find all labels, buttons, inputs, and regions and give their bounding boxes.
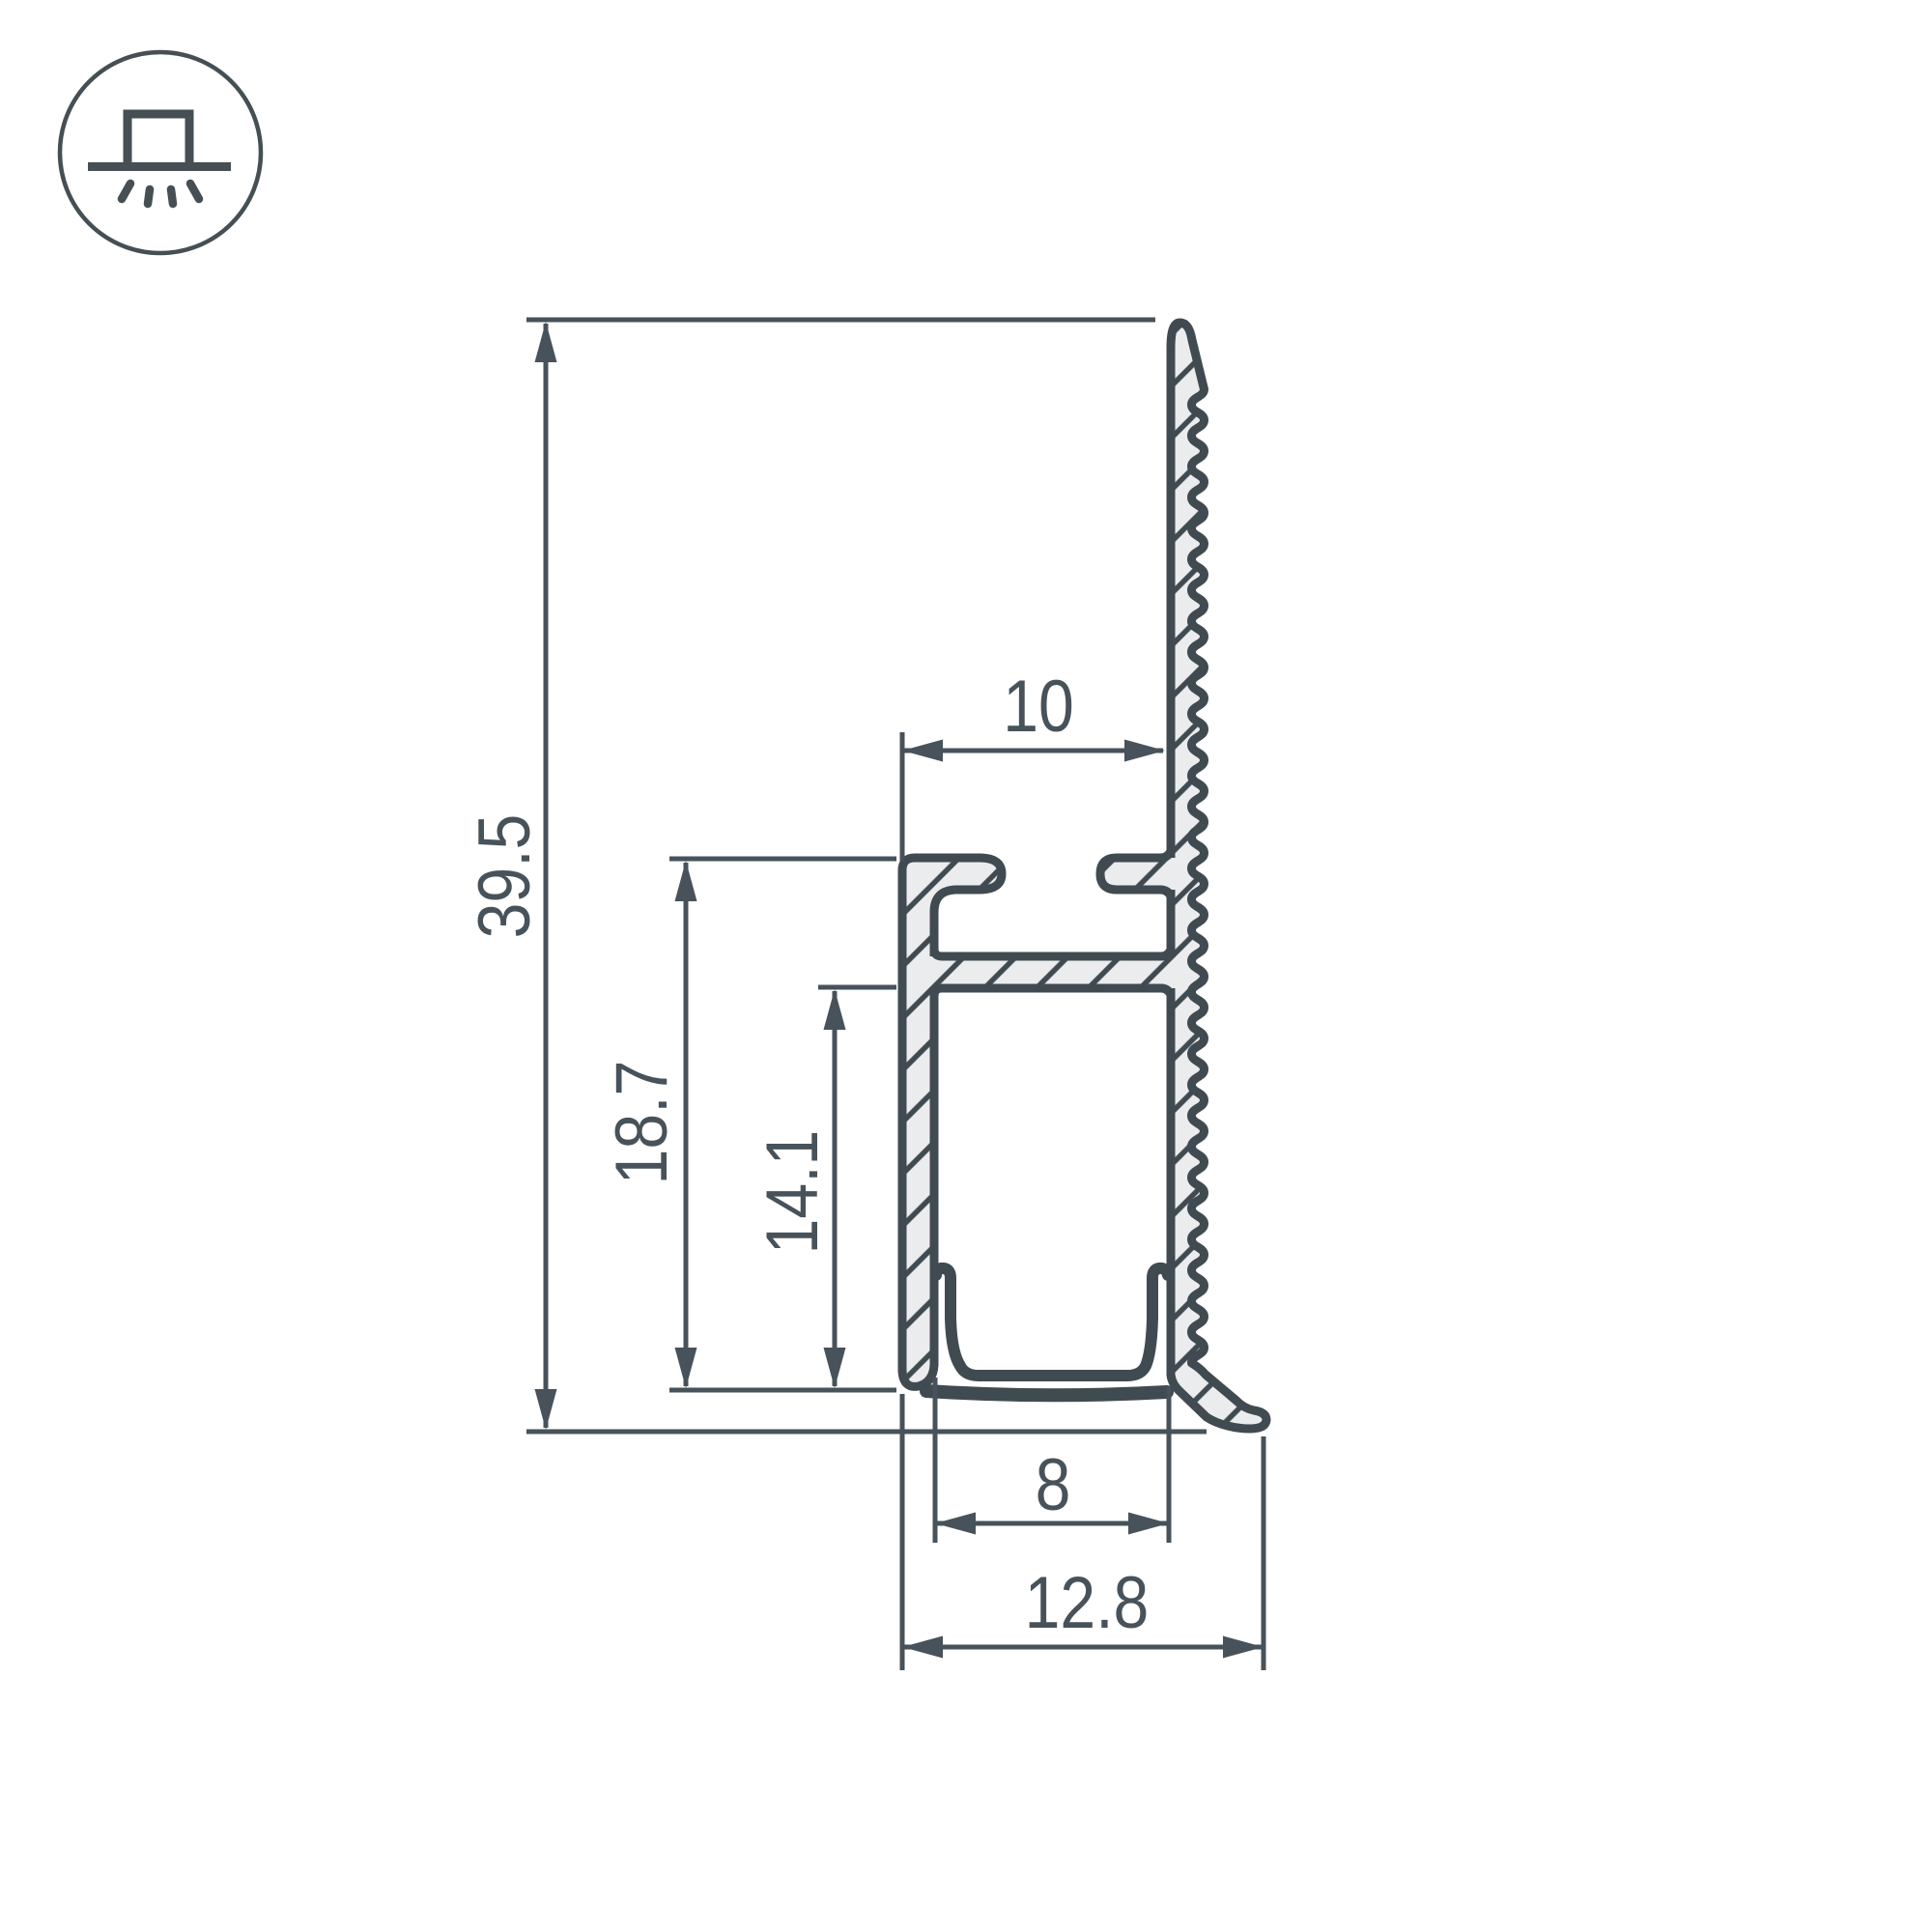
- svg-text:12.8: 12.8: [1025, 1563, 1150, 1644]
- svg-text:10: 10: [1003, 667, 1074, 748]
- svg-text:8: 8: [1036, 1445, 1071, 1526]
- svg-text:14.1: 14.1: [753, 1130, 834, 1255]
- svg-text:39.5: 39.5: [465, 814, 546, 939]
- svg-text:18.7: 18.7: [602, 1061, 683, 1185]
